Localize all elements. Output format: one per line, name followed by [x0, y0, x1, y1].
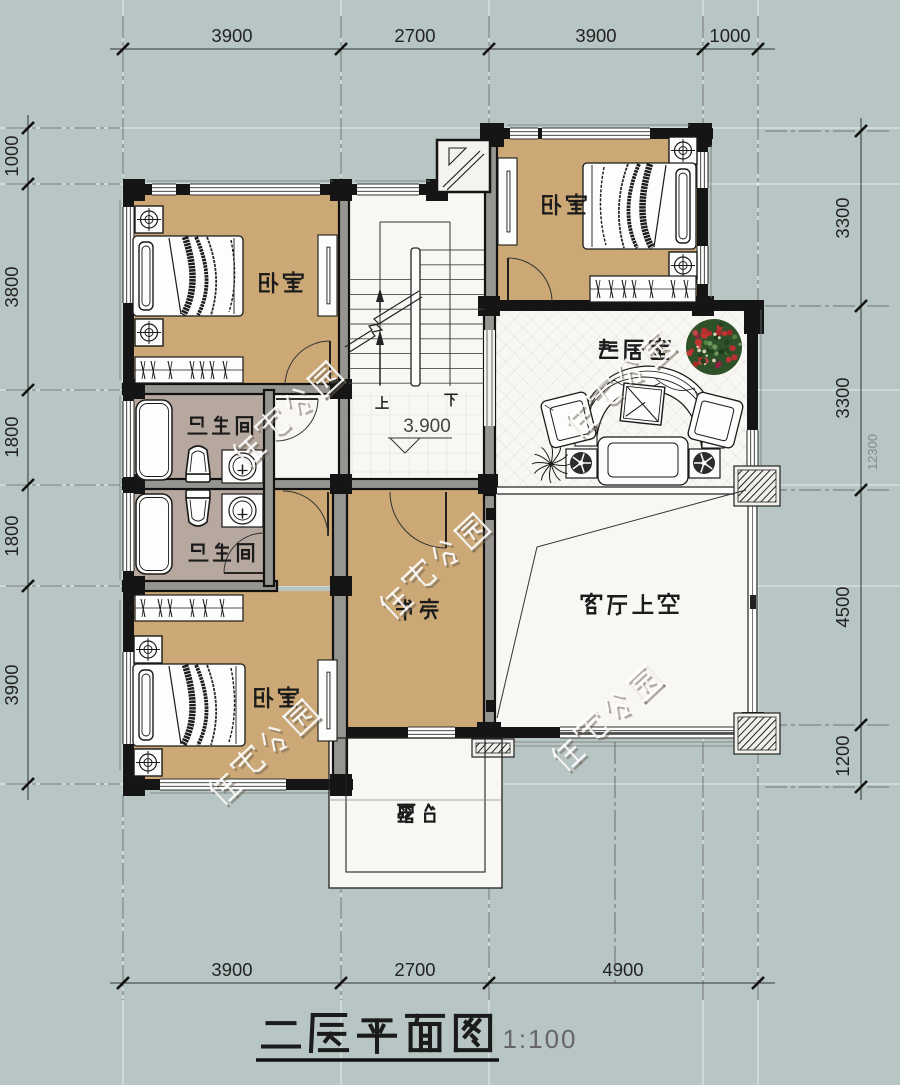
- svg-text:3800: 3800: [1, 266, 22, 307]
- svg-text:3300: 3300: [832, 197, 853, 238]
- svg-text:1000: 1000: [709, 25, 750, 46]
- svg-text:12300: 12300: [865, 434, 880, 470]
- svg-text:1800: 1800: [1, 416, 22, 457]
- svg-text:3.900: 3.900: [403, 416, 451, 437]
- svg-text:2700: 2700: [394, 959, 435, 980]
- svg-text:1200: 1200: [832, 735, 853, 776]
- svg-text:3900: 3900: [211, 959, 252, 980]
- svg-text:3900: 3900: [211, 25, 252, 46]
- svg-text:1000: 1000: [1, 135, 22, 176]
- svg-text:3900: 3900: [575, 25, 616, 46]
- svg-text:1800: 1800: [1, 515, 22, 556]
- svg-text:1:100: 1:100: [502, 1024, 577, 1054]
- svg-text:4500: 4500: [832, 586, 853, 627]
- svg-text:4900: 4900: [602, 959, 643, 980]
- svg-text:3300: 3300: [832, 377, 853, 418]
- svg-text:3900: 3900: [1, 664, 22, 705]
- svg-text:2700: 2700: [394, 25, 435, 46]
